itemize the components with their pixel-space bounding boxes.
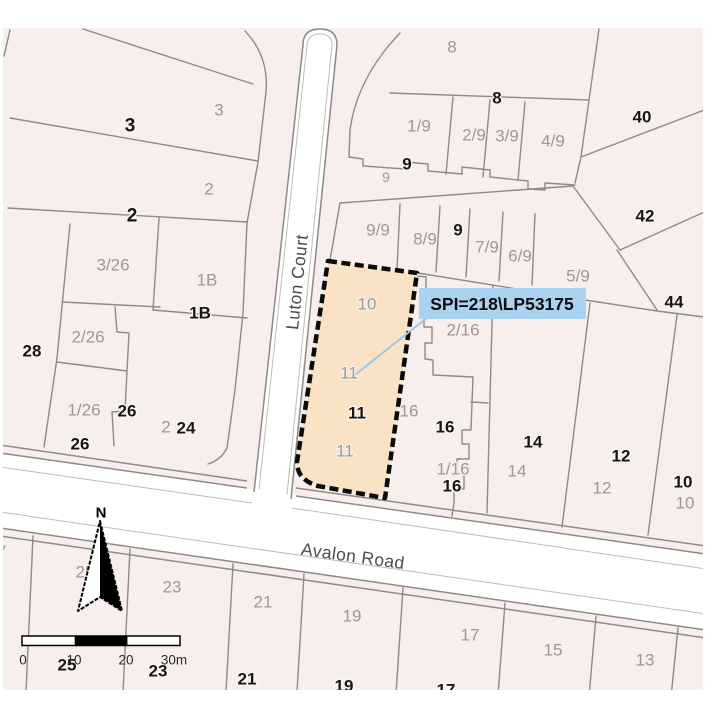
street-number-label: 9 xyxy=(402,155,411,174)
lot-number-label: 3 xyxy=(214,101,223,120)
spi-callout-text: SPI=218\LP53175 xyxy=(430,294,574,314)
scale-bar-segment xyxy=(75,636,128,646)
lot-number-label: 9/9 xyxy=(366,221,390,240)
lot-number-label: 9 xyxy=(382,169,390,185)
street-number-label: 10 xyxy=(674,473,693,492)
street-number-label: 44 xyxy=(665,293,684,312)
street-number-label: 2 xyxy=(127,206,138,227)
street-number-label: 26 xyxy=(118,402,137,421)
lot-number-label: 3/26 xyxy=(96,256,129,275)
lot-number-label: 17 xyxy=(461,626,480,645)
scale-tick: 0 xyxy=(19,653,27,668)
street-number-label: 40 xyxy=(633,108,652,127)
street-number-label: 28 xyxy=(23,342,42,361)
lot-number-label: 14 xyxy=(508,462,527,481)
map-margin xyxy=(0,690,720,720)
lot-number-label: 1/26 xyxy=(67,401,100,420)
street-number-label: 24 xyxy=(177,419,196,438)
street-number-label: 12 xyxy=(612,447,631,466)
map-window: SPI=218\LP53175 323/261B2/261/26281/92/9… xyxy=(0,0,720,720)
street-number-label: 26 xyxy=(71,435,90,454)
street-number-label: 14 xyxy=(524,433,543,452)
lot-number-label: 5/9 xyxy=(566,267,590,286)
lot-number-label: 2/26 xyxy=(71,328,104,347)
lot-number-label: 13 xyxy=(636,651,655,670)
street-number-label: 1B xyxy=(189,304,211,323)
lot-number-label: 2/9 xyxy=(462,126,486,145)
cadastral-map-canvas[interactable]: SPI=218\LP53175 323/261B2/261/26281/92/9… xyxy=(0,0,720,720)
lot-number-label: 10 xyxy=(676,494,695,513)
lot-number-label: 6/9 xyxy=(508,247,532,266)
lot-number-label: 2 xyxy=(204,180,213,199)
scale-tick: 20 xyxy=(118,653,133,668)
street-number-label: 16 xyxy=(443,477,462,496)
street-number-label: 8 xyxy=(492,89,501,108)
lot-number-label: 19 xyxy=(343,607,362,626)
lot-number-label: 21 xyxy=(254,593,273,612)
street-number-label: 21 xyxy=(238,670,257,689)
lot-number-label: 2 xyxy=(161,418,170,437)
lot-number-label: 10 xyxy=(358,295,377,314)
street-number-label: 9 xyxy=(453,221,462,240)
street-number-label: 42 xyxy=(636,207,655,226)
street-number-label: 3 xyxy=(125,116,136,137)
scale-tick: 10 xyxy=(66,653,81,668)
lot-number-label: 1B xyxy=(197,271,218,290)
lot-number-label: 2/16 xyxy=(446,321,479,340)
lot-number-label: 16 xyxy=(400,402,419,421)
scale-tick: 30m xyxy=(161,653,187,668)
street-number-label: 16 xyxy=(436,418,455,437)
lot-number-label: 15 xyxy=(544,641,563,660)
map-margin xyxy=(0,0,720,28)
map-margin xyxy=(703,0,720,720)
lot-number-label: 23 xyxy=(163,578,182,597)
lot-number-label: 8/9 xyxy=(413,230,437,249)
lot-number-label: 4/9 xyxy=(541,132,565,151)
lot-number-label: 1/9 xyxy=(407,117,431,136)
lot-number-label: 11 xyxy=(340,364,358,383)
lot-number-label: 12 xyxy=(593,479,612,498)
lot-number-label: 7/9 xyxy=(475,238,499,257)
lot-number-label: 8 xyxy=(447,38,456,57)
street-number-label: 11 xyxy=(348,404,366,423)
map-margin xyxy=(0,0,3,720)
lot-number-label: 11 xyxy=(336,442,354,461)
north-arrow-label: N xyxy=(96,505,107,522)
lot-number-label: 3/9 xyxy=(495,127,519,146)
